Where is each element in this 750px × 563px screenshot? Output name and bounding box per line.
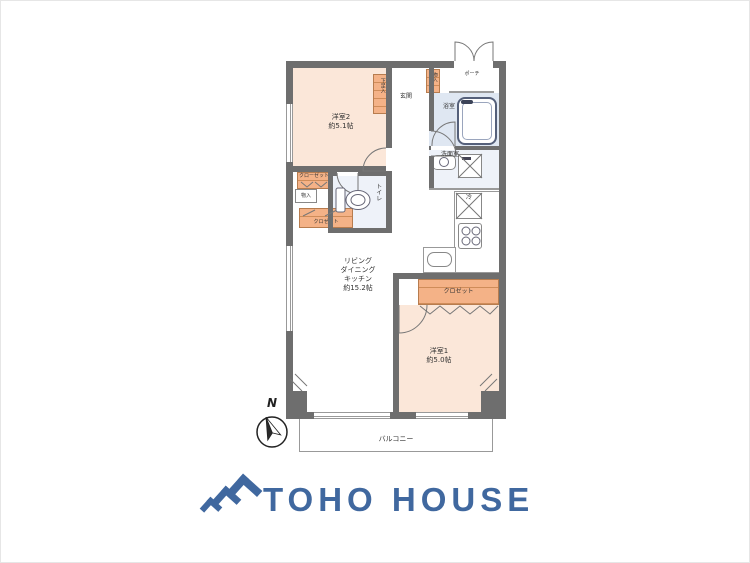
balcony: バルコニー	[299, 419, 493, 452]
bedroom2-name: 洋室2	[332, 113, 350, 121]
entrance-label: 玄関	[390, 93, 422, 101]
ldk-line3: キッチン	[344, 275, 372, 283]
wall-toilet-left	[328, 171, 333, 233]
compass-north-icon: N	[251, 394, 297, 454]
compass: N	[251, 394, 297, 454]
refrigerator-label: 冷	[460, 194, 478, 202]
wall-bath-divider-b	[455, 146, 499, 150]
porch-label: ポーチ	[452, 72, 492, 78]
window-bedroom1-balcony	[416, 412, 468, 419]
wall-wet-left-upper	[429, 68, 434, 131]
balcony-label: バルコニー	[300, 435, 492, 444]
wall-wet-left-lower	[429, 156, 434, 188]
ldk-line1: リビング	[344, 257, 372, 265]
wall-toilet-right	[386, 171, 392, 233]
bedroom1-label: 洋室1 約5.0帖	[409, 347, 469, 365]
bedroom1-area: 約5.0帖	[426, 356, 451, 364]
toilet-label: トイレ	[374, 183, 382, 201]
floor-plan: バルコニー 下足入 物入 クローゼット 物入 クロゼット クロゼット 冷	[284, 41, 508, 456]
window-bedroom2	[286, 104, 293, 162]
wall-bath-divider-a	[429, 146, 431, 150]
entrance-door-leaf-right	[474, 42, 493, 61]
window-ldk	[286, 246, 293, 331]
wall-post-right	[481, 391, 503, 419]
bedroom2-area: 約5.1帖	[328, 122, 353, 130]
ldk-line2: ダイニング	[341, 266, 376, 274]
bedroom2-label: 洋室2 約5.1帖	[301, 113, 381, 131]
wall-ldk-bedroom1	[393, 279, 399, 412]
washroom-label: 洗面室	[430, 151, 470, 159]
ldk-area: 約15.2帖	[343, 284, 373, 292]
wall-bedroom2-hall	[386, 68, 392, 148]
window-ldk-balcony	[314, 412, 390, 419]
bedroom1-name: 洋室1	[430, 347, 448, 355]
entrance-door-opening	[454, 61, 493, 68]
floorplan-page: バルコニー 下足入 物入 クローゼット 物入 クロゼット クロゼット 冷	[0, 0, 750, 563]
brand-logo-text: TOHO HOUSE	[263, 481, 534, 519]
entrance-door-leaf-left	[455, 42, 474, 61]
ldk-label: リビング ダイニング キッチン 約15.2帖	[328, 257, 388, 293]
bathroom-label: 浴室	[431, 103, 467, 111]
brand-logo: TOHO HOUSE	[199, 473, 559, 533]
wall-toilet-bottom	[328, 228, 392, 233]
compass-n-label: N	[267, 396, 277, 410]
wall-kitchen-closet	[393, 273, 506, 279]
